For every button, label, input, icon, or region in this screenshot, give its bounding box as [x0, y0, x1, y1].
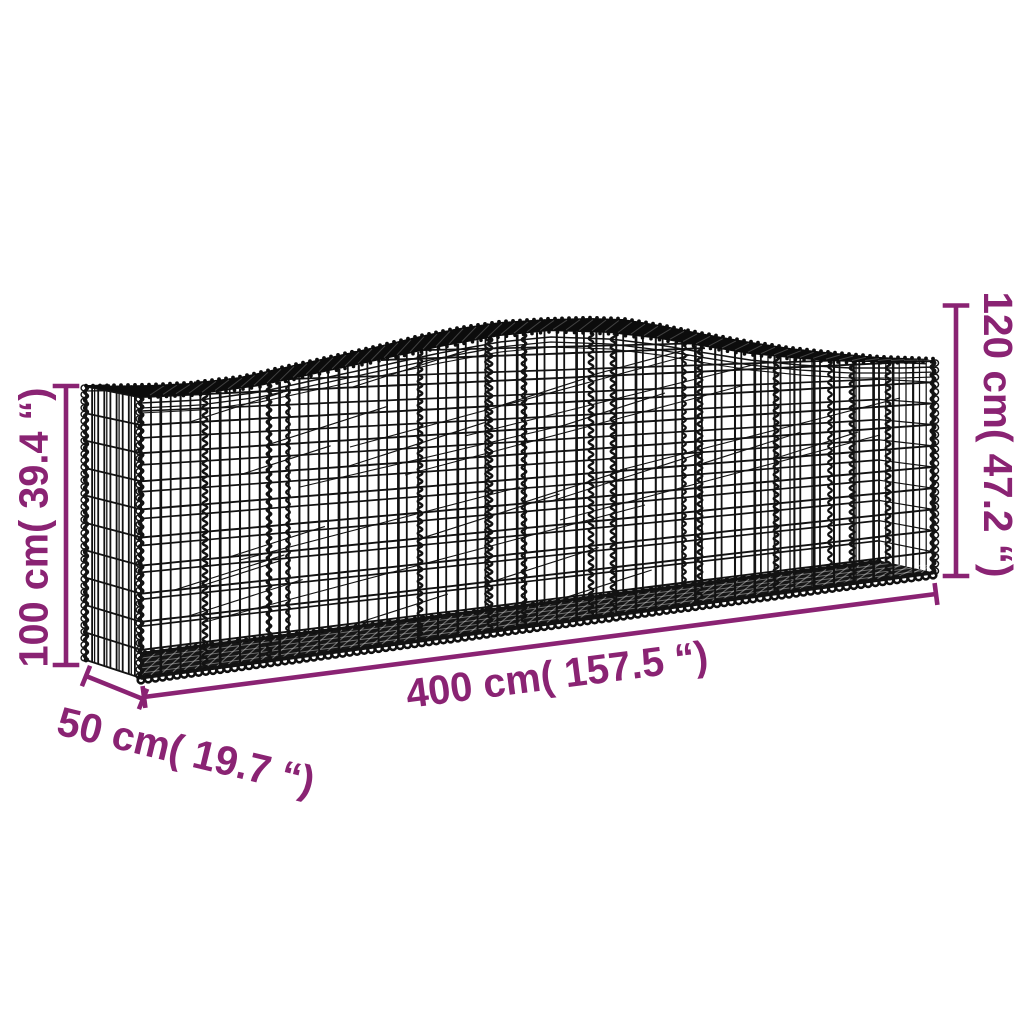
- svg-text:50 cm( 19.7 “): 50 cm( 19.7 “): [53, 698, 319, 804]
- svg-text:120 cm( 47.2 “): 120 cm( 47.2 “): [975, 292, 1021, 578]
- svg-text:100 cm( 39.4 “): 100 cm( 39.4 “): [11, 388, 57, 668]
